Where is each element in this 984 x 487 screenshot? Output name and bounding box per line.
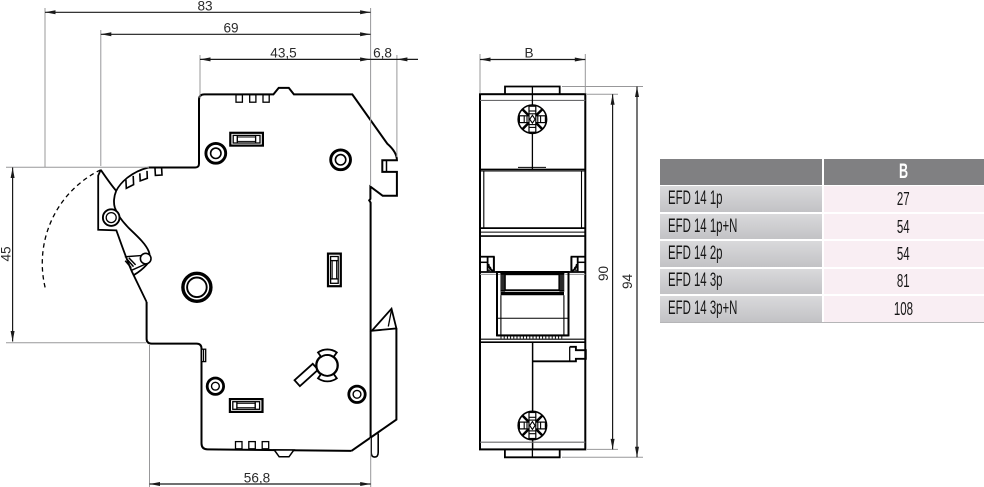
svg-text:43,5: 43,5 [270, 46, 297, 61]
svg-text:94: 94 [620, 274, 635, 289]
svg-text:69: 69 [223, 20, 238, 35]
svg-text:90: 90 [596, 266, 611, 281]
svg-text:83: 83 [197, 0, 212, 14]
svg-text:B: B [524, 45, 533, 60]
svg-text:6,8: 6,8 [373, 46, 392, 61]
svg-text:56,8: 56,8 [244, 470, 271, 485]
svg-text:45: 45 [0, 246, 13, 261]
